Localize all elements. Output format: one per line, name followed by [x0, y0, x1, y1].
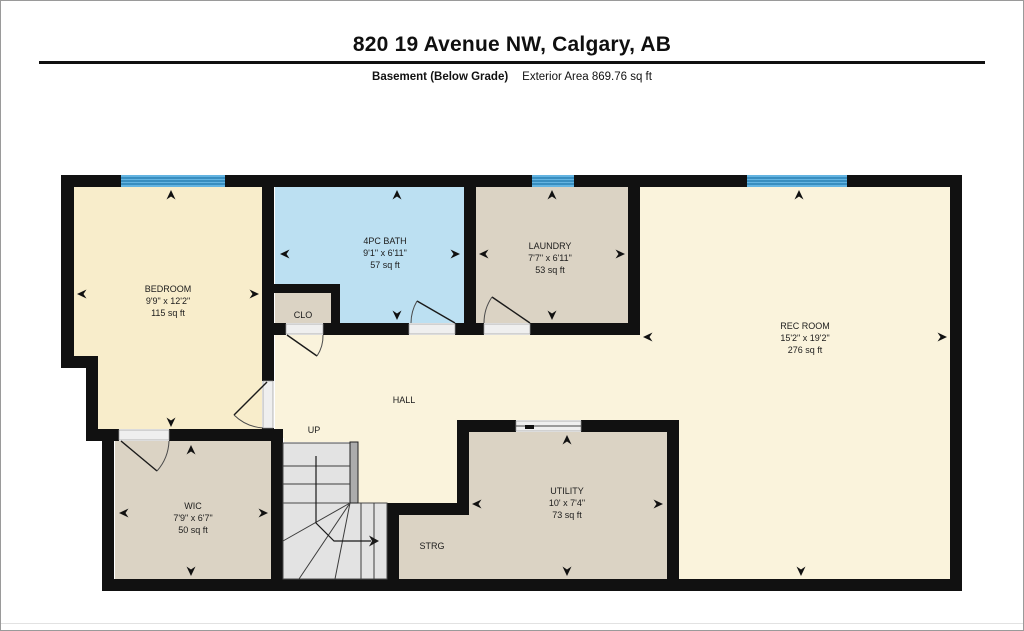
recroom-window — [747, 175, 847, 187]
stairs-up-label: UP — [308, 425, 321, 435]
utility-dims: 10' x 7'4" — [549, 498, 585, 508]
laundry-window — [532, 175, 574, 187]
recroom-sqft: 276 sq ft — [788, 345, 823, 355]
page-bottom-hairline — [1, 623, 1023, 624]
bath-sqft: 57 sq ft — [370, 260, 400, 270]
utility-sqft: 73 sq ft — [552, 510, 582, 520]
bedroom-sqft: 115 sq ft — [151, 308, 185, 318]
bath-door-opening — [409, 324, 455, 334]
stairs-railing — [350, 442, 358, 503]
laundry-sqft: 53 sq ft — [535, 265, 565, 275]
laundry-door-opening — [484, 324, 530, 334]
wic-sqft: 50 sq ft — [178, 525, 208, 535]
utility-label: UTILITY — [550, 486, 584, 496]
bedroom-label: BEDROOM — [145, 284, 192, 294]
laundry-label: LAUNDRY — [529, 241, 572, 251]
storage-label: STRG — [419, 541, 444, 551]
wic-dims: 7'9" x 6'7" — [173, 513, 212, 523]
recroom-label: REC ROOM — [780, 321, 830, 331]
wic-label: WIC — [184, 501, 202, 511]
closet-label: CLO — [294, 310, 313, 320]
wic-door-opening — [119, 430, 169, 440]
utility-sliding-door-handle — [525, 425, 534, 429]
laundry-dims: 7'7" x 6'11" — [528, 253, 572, 263]
bedroom-dims: 9'9" x 12'2" — [146, 296, 190, 306]
floorplan-page: 820 19 Avenue NW, Calgary, AB Basement (… — [0, 0, 1024, 631]
hall-label: HALL — [393, 395, 416, 405]
floorplan-drawing: BEDROOM 9'9" x 12'2" 115 sq ft 4PC BATH … — [1, 1, 1024, 631]
bath-dims: 9'1" x 6'11" — [363, 248, 407, 258]
closet-door-opening — [286, 324, 323, 334]
bedroom-door-opening — [263, 381, 273, 428]
bedroom-window — [121, 175, 225, 187]
bath-label: 4PC BATH — [363, 236, 406, 246]
recroom-dims: 15'2" x 19'2" — [780, 333, 829, 343]
